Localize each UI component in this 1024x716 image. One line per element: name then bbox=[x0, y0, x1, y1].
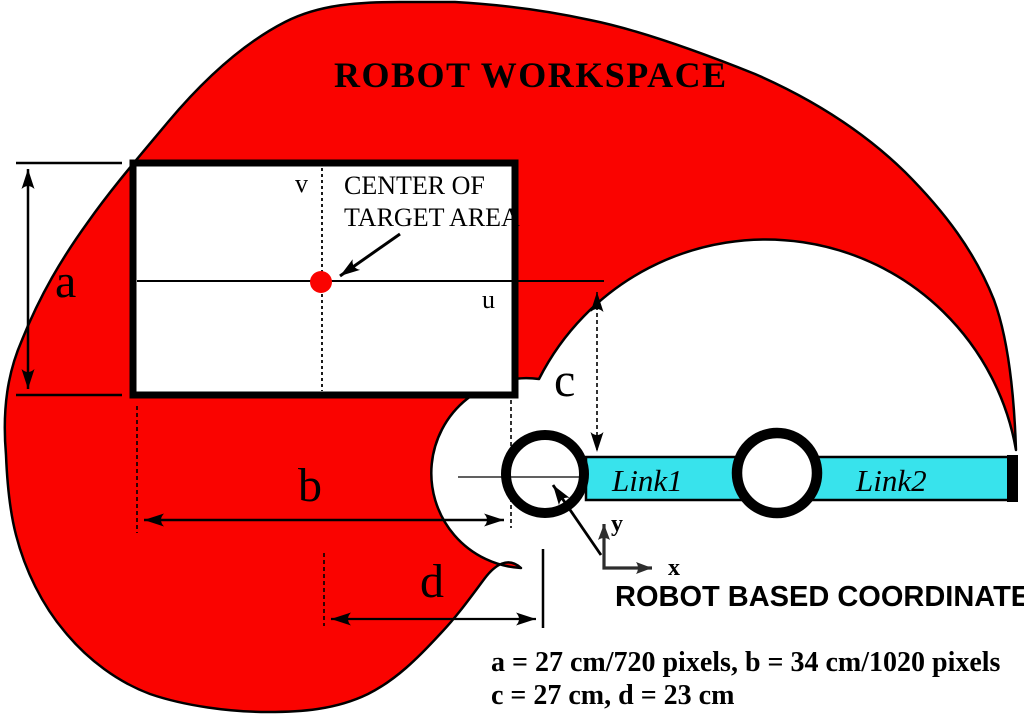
link1-label: Link1 bbox=[611, 463, 683, 498]
y-axis-label: y bbox=[611, 511, 623, 537]
v-axis-label: v bbox=[295, 169, 308, 198]
base-joint-circle bbox=[506, 435, 584, 513]
dim-c-label: c bbox=[554, 354, 575, 407]
dim-a-label: a bbox=[55, 255, 76, 308]
center-annotation-line1: CENTER OF bbox=[344, 171, 485, 200]
elbow-joint-circle bbox=[737, 433, 817, 513]
link2-label: Link2 bbox=[855, 463, 927, 498]
u-axis-label: u bbox=[482, 285, 495, 314]
caption-line-1: a = 27 cm/720 pixels, b = 34 cm/1020 pix… bbox=[491, 647, 1001, 678]
dim-b-label: b bbox=[298, 459, 322, 512]
target-center-dot bbox=[310, 271, 332, 293]
x-axis-label: x bbox=[668, 555, 680, 581]
center-annotation-line2: TARGET AREA bbox=[344, 203, 520, 232]
robot-workspace-figure: ROBOT WORKSPACE v u CENTER OF TARGET ARE… bbox=[0, 0, 1024, 716]
link-end-cap bbox=[1007, 455, 1018, 502]
dim-d-label: d bbox=[420, 555, 444, 608]
caption-line-2: c = 27 cm, d = 23 cm bbox=[491, 680, 734, 711]
workspace-title: ROBOT WORKSPACE bbox=[334, 55, 728, 95]
robot-coord-label: ROBOT BASED COORDINATE bbox=[615, 581, 1024, 613]
